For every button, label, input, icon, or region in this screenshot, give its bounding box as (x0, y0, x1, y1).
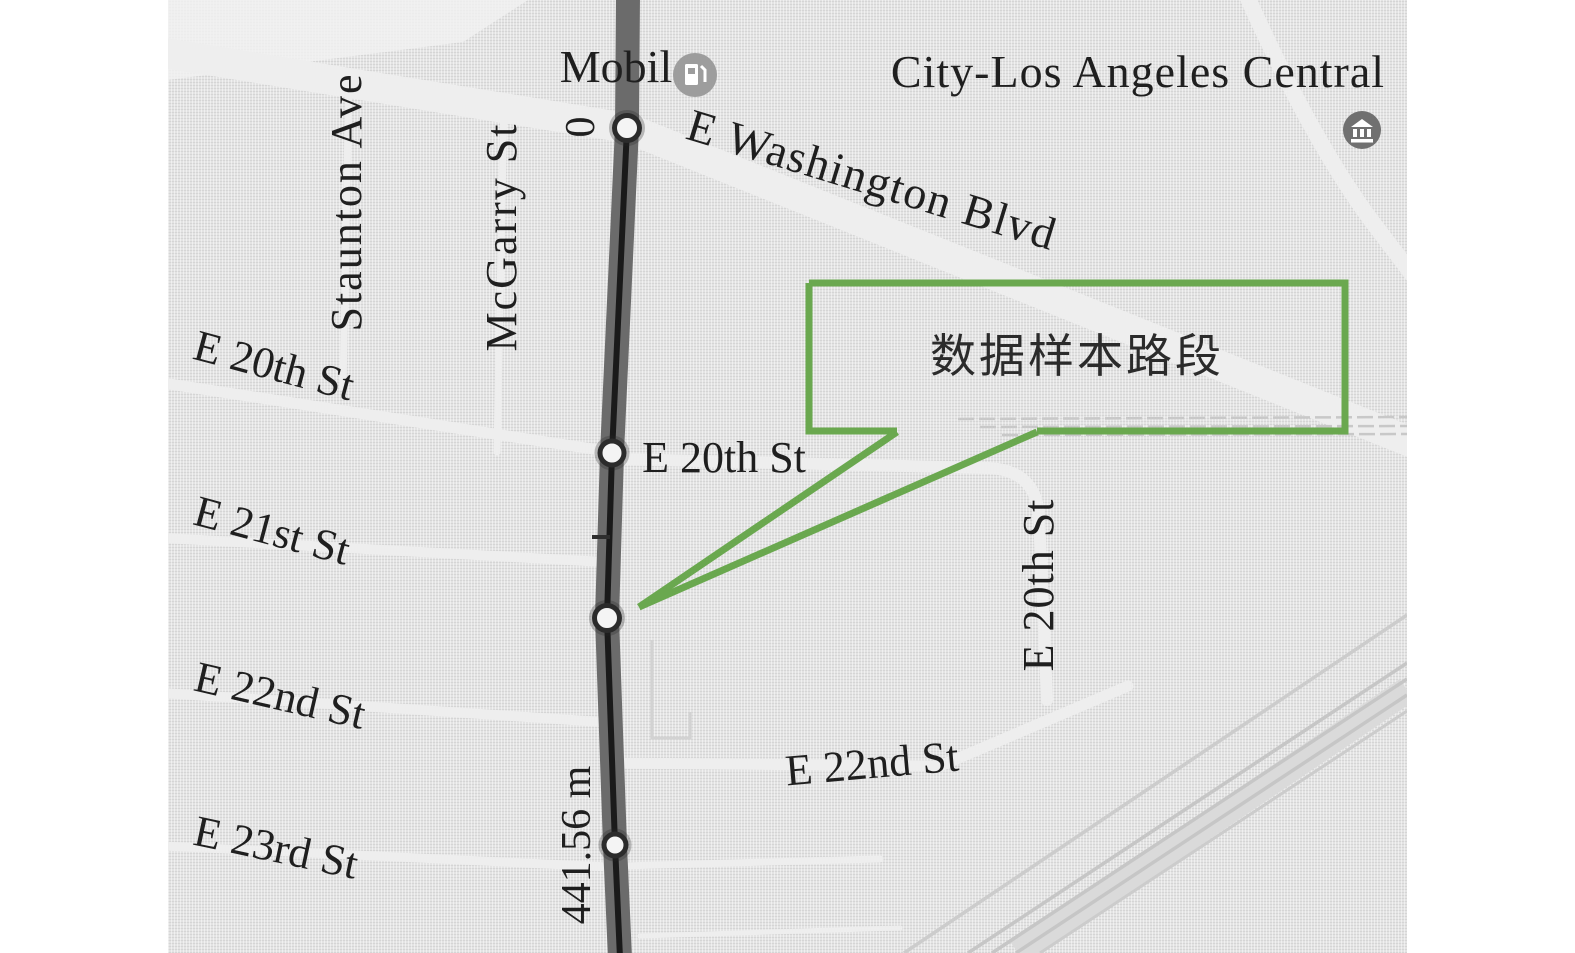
marker-end (600, 830, 630, 860)
map-area: Mobil City-Los Angeles Central E Washing… (168, 0, 1407, 953)
road-e20th-west (168, 383, 612, 452)
gas-station-icon (673, 53, 717, 97)
street-label-mcgarry-st: McGarry St (480, 123, 524, 352)
segment-length-label: 441.56 m (556, 766, 598, 925)
marker-e20th (596, 437, 628, 469)
museum-icon (1343, 111, 1381, 149)
figure-canvas: Mobil City-Los Angeles Central E Washing… (0, 0, 1575, 953)
poi-label-mobil: Mobil (560, 44, 672, 90)
road-e23rd-stub (620, 859, 880, 866)
callout-label-sample-segment: 数据样本路段 (930, 334, 1224, 380)
street-label-e20th-mid: E 20th St (642, 436, 806, 480)
street-label-staunton-ave: Staunton Ave (325, 72, 369, 331)
road-top-right-curve (1246, 0, 1407, 282)
poi-label-city-la-central: City-Los Angeles Central (891, 49, 1385, 95)
road-bottom-faint (640, 928, 900, 936)
segment-start-label: 0 (560, 117, 602, 138)
street-label-e20th-east: E 20th St (1017, 499, 1061, 672)
railway-diagonals (904, 615, 1407, 953)
building-outline (652, 640, 690, 738)
marker-pointed (591, 602, 624, 635)
marker-start (611, 112, 644, 145)
